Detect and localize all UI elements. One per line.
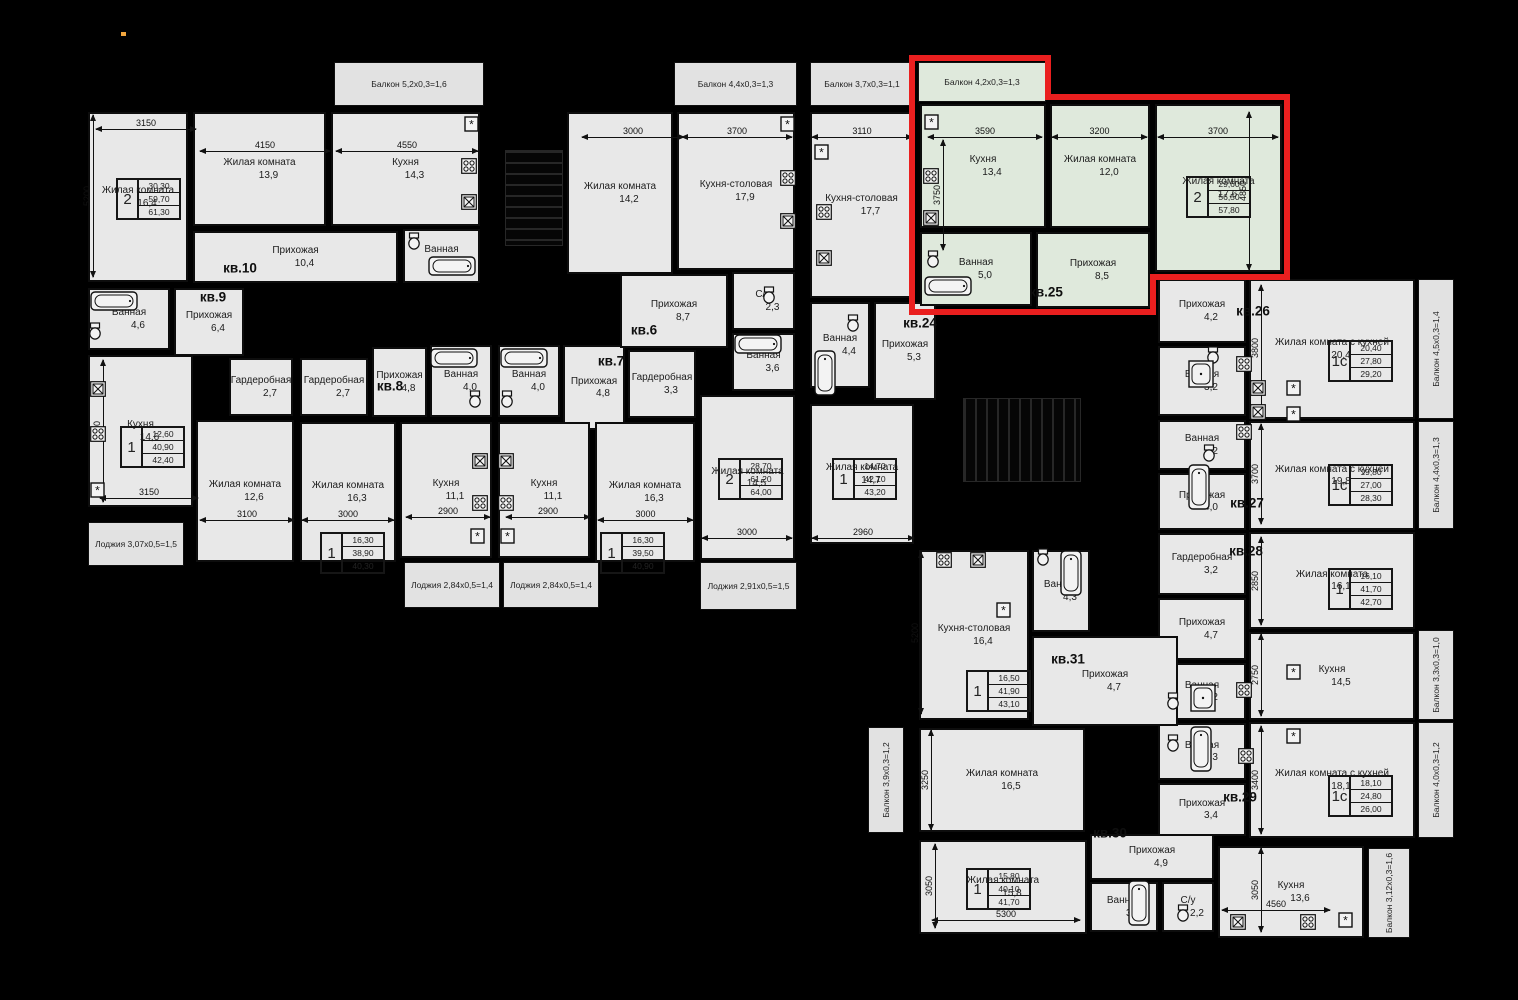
dimension: 3000 <box>702 527 792 539</box>
dimension-value: 3000 <box>338 509 358 519</box>
room-area: 4,4 <box>842 346 856 357</box>
balcony: Балкон 4,4х0,3=1,3 <box>674 62 797 106</box>
apartment-number-label: кв.7 <box>598 354 624 369</box>
balcony: Балкон 4,5х0,3=1,4 <box>1418 279 1454 419</box>
room-name: Кухня <box>531 478 558 489</box>
room: Кухня14,3 <box>331 112 480 226</box>
stove-icon <box>816 204 832 220</box>
dimension: 3150 <box>100 487 198 499</box>
dimension-value: 4560 <box>1266 899 1286 909</box>
spec-rooms-count: 2 <box>118 180 139 218</box>
room-name: Прихожая <box>882 339 928 350</box>
spec-rooms-count: 1 <box>834 460 855 498</box>
dimension-arrow-line <box>302 520 394 521</box>
dimension-value: 3700 <box>1250 464 1260 484</box>
apartment-number-label: кв.30 <box>1093 826 1127 841</box>
toilet-icon <box>1166 734 1180 752</box>
dimension-value: 3150 <box>139 487 159 497</box>
room-name: Прихожая <box>1179 798 1225 809</box>
dimension-arrow-line <box>931 730 932 830</box>
svg-text:*: * <box>505 530 510 544</box>
stove-icon <box>1236 424 1252 440</box>
apartment-number-label: кв.8 <box>377 379 403 394</box>
svg-text:*: * <box>1291 408 1296 422</box>
room-area: 16,3 <box>347 493 366 504</box>
balcony-label: Балкон 4,4х0,3=1,3 <box>1431 437 1441 513</box>
room: Жилая комната16,5 <box>919 728 1085 832</box>
spec-area-value: 28,70 <box>741 460 781 473</box>
dimension-arrow-line <box>1222 910 1330 911</box>
room-name: Гардеробная <box>304 375 365 386</box>
balcony-label: Лоджия 2,84х0,5=1,4 <box>411 580 493 590</box>
room-name: Жилая комната <box>966 768 1038 779</box>
spec-areas: 30,3059,7061,30 <box>139 180 179 218</box>
fridge-icon: * <box>780 116 795 132</box>
dimension-arrow-line <box>812 137 912 138</box>
apartment-number-label: кв.24 <box>903 316 937 331</box>
apartment-spec-table: 116,3039,5040,90 <box>600 532 665 574</box>
sink-icon <box>816 250 832 266</box>
spec-rooms-count: 1с <box>1330 342 1351 380</box>
balcony-label: Балкон 4,4х0,3=1,3 <box>698 79 774 89</box>
dimension-arrow-line <box>1158 137 1278 138</box>
spec-area-value: 26,00 <box>1351 803 1391 815</box>
room-area: 12,0 <box>1099 167 1118 178</box>
dimension-value: 3110 <box>852 126 871 136</box>
spec-area-value: 61,20 <box>741 473 781 486</box>
sink-icon <box>472 453 488 469</box>
room: Гардеробная2,7 <box>300 358 368 416</box>
spec-area-value: 43,10 <box>989 698 1029 710</box>
room-area: 14,5 <box>1331 677 1350 688</box>
balcony: Балкон 3,3х0,3=1,0 <box>1418 630 1454 720</box>
dimension-arrow-line <box>1261 848 1262 932</box>
toilet-icon <box>926 250 940 268</box>
svg-text:*: * <box>1001 604 1006 618</box>
room-area: 17,9 <box>735 192 754 203</box>
toilet-icon <box>846 314 860 332</box>
room-area: 14,3 <box>405 170 424 181</box>
room-name: Гардеробная <box>632 372 693 383</box>
balcony-label: Балкон 4,2х0,3=1,3 <box>944 77 1020 87</box>
balcony-label: Балкон 3,12х0,3=1,6 <box>1384 853 1394 933</box>
stove-icon <box>1236 356 1252 372</box>
room: Жилая комната12,6 <box>196 420 294 562</box>
room-name: Прихожая <box>1082 669 1128 680</box>
sink-icon <box>923 210 939 226</box>
dimension-value: 5200 <box>910 623 920 643</box>
dimension: 4850 <box>1238 112 1250 270</box>
spec-area-value: 27,00 <box>1351 479 1391 492</box>
fridge-icon: * <box>1338 912 1353 928</box>
fridge-icon: * <box>924 114 939 130</box>
room-area: 4,6 <box>131 320 145 331</box>
dimension-value: 3000 <box>635 509 655 519</box>
spec-area-value: 15,80 <box>989 870 1029 883</box>
spec-area-value: 20,40 <box>1351 342 1391 355</box>
dimension-arrow-line <box>921 552 922 714</box>
dimension: 4550 <box>336 140 478 152</box>
svg-text:*: * <box>785 118 790 132</box>
stove-icon <box>472 495 488 511</box>
apartment-spec-table: 116,1041,7042,70 <box>1328 568 1393 610</box>
spec-area-value: 42,40 <box>143 454 183 466</box>
spec-areas: 19,8027,0028,30 <box>1351 466 1391 504</box>
dimension-value: 3200 <box>1089 126 1109 136</box>
spec-area-value: 42,70 <box>1351 596 1391 608</box>
apartment-number-label: кв.6 <box>631 323 657 338</box>
spec-rooms-count: 1 <box>322 534 343 572</box>
room-area: 10,4 <box>295 258 314 269</box>
balcony: Балкон 4,2х0,3=1,3 <box>918 62 1046 102</box>
fridge-icon: * <box>500 528 515 544</box>
fridge-icon: * <box>464 116 479 132</box>
floor-plan: Жилая комната16,4Жилая комната13,9Кухня1… <box>0 0 1518 1000</box>
dimension: 3700 <box>1158 126 1278 138</box>
bath-v-icon <box>1190 726 1212 772</box>
dimension-value: 3590 <box>975 126 995 136</box>
bath-v-icon <box>1188 464 1210 510</box>
dimension-arrow-line <box>336 151 478 152</box>
room: Гардеробная3,2 <box>1158 533 1246 595</box>
apartment-spec-table: 116,5041,9043,10 <box>966 670 1031 712</box>
apartment-spec-table: 114,7042,1043,20 <box>832 458 897 500</box>
spec-rooms-count: 1 <box>1330 570 1351 608</box>
room-area: 11,1 <box>446 491 465 502</box>
spec-area-value: 59,70 <box>139 193 179 206</box>
spec-area-value: 14,70 <box>855 460 895 473</box>
spec-area-value: 24,80 <box>1351 790 1391 803</box>
apartment-number-label: кв.25 <box>1029 285 1063 300</box>
spec-areas: 18,1024,8026,00 <box>1351 777 1391 815</box>
apartment-spec-table: 115,8040,1041,70 <box>966 868 1031 910</box>
room-area: 8,5 <box>1095 271 1109 282</box>
dimension-value: 2900 <box>438 506 458 516</box>
room-name: Гардеробная <box>1172 552 1233 563</box>
balcony-label: Лоджия 2,84х0,5=1,4 <box>510 580 592 590</box>
room-area: 4,9 <box>1154 858 1168 869</box>
room-name: Прихожая <box>571 376 617 387</box>
balcony: Лоджия 2,84х0,5=1,4 <box>503 562 599 608</box>
room-area: 16,5 <box>1001 781 1020 792</box>
room: Жилая комната12,0 <box>1050 104 1150 228</box>
room-area: 17,7 <box>861 206 880 217</box>
balcony-label: Балкон 4,5х0,3=1,4 <box>1431 311 1441 387</box>
balcony-label: Балкон 3,9х0,3=1,2 <box>881 742 891 818</box>
apartment-spec-table: 116,3038,9040,30 <box>320 532 385 574</box>
stove-icon <box>936 552 952 568</box>
room: Гардеробная2,7 <box>229 358 293 416</box>
balcony-label: Балкон 3,7х0,3=1,1 <box>824 79 900 89</box>
room-area: 6,4 <box>211 323 225 334</box>
room: Прихожая4,7 <box>1032 636 1178 726</box>
svg-text:*: * <box>819 146 824 160</box>
dimension: 3400 <box>1250 726 1262 834</box>
room-area: 14,2 <box>619 194 638 205</box>
dimension-value: 3000 <box>623 126 643 136</box>
room-area: 3,4 <box>1204 810 1218 821</box>
room-area: 4,7 <box>1107 682 1121 693</box>
spec-area-value: 16,50 <box>989 672 1029 685</box>
sink-icon <box>1250 380 1266 396</box>
dimension-value: 3050 <box>1250 880 1260 900</box>
spec-rooms-count: 1 <box>968 672 989 710</box>
spec-rooms-count: 2 <box>1188 178 1209 216</box>
apartment-spec-table: 1с20,4027,8029,20 <box>1328 340 1393 382</box>
room: Кухня14,5 <box>1249 632 1415 720</box>
dimension-arrow-line <box>943 140 944 250</box>
dimension-value: 2900 <box>538 506 558 516</box>
dimension: 4560 <box>1222 899 1330 911</box>
room: Жилая комната13,9 <box>193 112 326 226</box>
dimension-value: 3050 <box>924 876 934 896</box>
room-name: Жилая комната <box>223 157 295 168</box>
dimension: 2900 <box>506 506 590 518</box>
dimension-arrow-line <box>598 520 693 521</box>
spec-areas: 15,8040,1041,70 <box>989 870 1029 908</box>
dimension-arrow-line <box>1249 112 1250 270</box>
dimension-arrow-line <box>506 517 590 518</box>
stove-icon <box>1238 748 1254 764</box>
sink-icon <box>1230 914 1246 930</box>
spec-areas: 28,7061,2064,00 <box>741 460 781 498</box>
room-area: 13,4 <box>982 167 1001 178</box>
bath-v-icon <box>814 350 836 396</box>
room-area: 3,3 <box>664 385 678 396</box>
spec-areas: 14,7042,1043,20 <box>855 460 895 498</box>
room-name: Ванная <box>823 333 857 344</box>
dimension: 3050 <box>1250 848 1262 932</box>
dimension-value: 3150 <box>136 118 156 128</box>
room-name: Прихожая <box>272 245 318 256</box>
spec-area-value: 16,30 <box>343 534 383 547</box>
room-name: Жилая комната <box>584 181 656 192</box>
dimension-value: 2960 <box>853 527 873 537</box>
spec-area-value: 38,90 <box>343 547 383 560</box>
balcony-label: Балкон 3,3х0,3=1,0 <box>1431 637 1441 713</box>
room-area: 5,0 <box>978 270 992 281</box>
spec-rooms-count: 1 <box>968 870 989 908</box>
apartment-number-label: кв.10 <box>223 261 257 276</box>
spec-area-value: 40,90 <box>143 441 183 454</box>
stairwell <box>505 150 563 246</box>
room-name: Прихожая <box>1179 299 1225 310</box>
fridge-icon: * <box>1286 664 1301 680</box>
sink-icon <box>461 194 477 210</box>
dimension-arrow-line <box>93 115 94 277</box>
fridge-icon: * <box>996 602 1011 618</box>
fridge-icon: * <box>470 528 485 544</box>
apartment-spec-table: 228,7061,2064,00 <box>718 458 783 500</box>
dimension-value: 3700 <box>1208 126 1228 136</box>
room-area: 13,9 <box>259 170 278 181</box>
dimension-value: 4850 <box>1238 181 1248 201</box>
room-area: 4,7 <box>1204 630 1218 641</box>
dimension-value: 3400 <box>1250 770 1260 790</box>
balcony-label: Лоджия 2,91х0,5=1,5 <box>708 581 790 591</box>
corner-marker <box>121 32 126 36</box>
dimension-value: 3700 <box>727 126 747 136</box>
shower-icon <box>1190 684 1216 712</box>
sink-icon <box>90 381 106 397</box>
spec-areas: 16,1041,7042,70 <box>1351 570 1391 608</box>
spec-area-value: 27,80 <box>1351 355 1391 368</box>
svg-text:*: * <box>1291 666 1296 680</box>
room-name: Ванная <box>1185 433 1219 444</box>
room-name: Прихожая <box>1179 617 1225 628</box>
balcony: Балкон 3,12х0,3=1,6 <box>1368 848 1410 938</box>
toilet-icon <box>1036 548 1050 566</box>
dimension-value: 3250 <box>920 770 930 790</box>
sink-icon <box>970 552 986 568</box>
dimension-value: 5200 <box>82 186 92 206</box>
spec-area-value: 41,70 <box>989 896 1029 908</box>
toilet-icon <box>762 286 776 304</box>
dimension: 2750 <box>1250 634 1262 716</box>
dimension: 3100 <box>200 509 294 521</box>
stairwell <box>963 398 1081 482</box>
sink-icon <box>498 453 514 469</box>
room-name: Кухня-столовая <box>938 623 1011 634</box>
stove-icon <box>780 170 796 186</box>
dimension: 3000 <box>598 509 693 521</box>
apartment-number-label: кв.31 <box>1051 652 1085 667</box>
balcony: Балкон 5,2х0,3=1,6 <box>334 62 484 106</box>
spec-area-value: 43,20 <box>855 486 895 498</box>
svg-text:*: * <box>929 116 934 130</box>
dimension-arrow-line <box>96 129 196 130</box>
dimension: 4150 <box>200 140 330 152</box>
spec-rooms-count: 2 <box>720 460 741 498</box>
dimension-arrow-line <box>1261 634 1262 716</box>
stove-icon <box>1300 914 1316 930</box>
dimension: 3000 <box>302 509 394 521</box>
dimension-arrow-line <box>932 920 1080 921</box>
room-name: Ванная <box>444 369 478 380</box>
spec-area-value: 39,50 <box>623 547 663 560</box>
apartment-spec-table: 230,3059,7061,30 <box>116 178 181 220</box>
room-area: 4,0 <box>531 382 545 393</box>
bath-h-icon <box>924 276 972 296</box>
dimension-value: 3000 <box>737 527 757 537</box>
dimension: 3750 <box>932 140 944 250</box>
balcony: Балкон 4,4х0,3=1,3 <box>1418 421 1454 529</box>
fridge-icon: * <box>814 144 829 160</box>
room-area: 3,6 <box>766 363 780 374</box>
apartment-number-label: кв.9 <box>200 290 226 305</box>
room-name: Кухня <box>433 478 460 489</box>
stove-icon <box>1236 682 1252 698</box>
balcony: Лоджия 2,84х0,5=1,4 <box>404 562 500 608</box>
spec-area-value: 41,70 <box>1351 583 1391 596</box>
dimension: 3700 <box>682 126 792 138</box>
svg-text:*: * <box>1291 730 1296 744</box>
dimension-value: 3750 <box>932 185 942 205</box>
dimension-arrow-line <box>702 538 792 539</box>
dimension-arrow-line <box>1052 137 1147 138</box>
spec-area-value: 40,10 <box>989 883 1029 896</box>
balcony-label: Лоджия 3,07х0,5=1,5 <box>95 539 177 549</box>
balcony: Балкон 3,7х0,3=1,1 <box>810 62 914 106</box>
room-area: 5,3 <box>907 352 921 363</box>
room-name: Прихожая <box>1129 845 1175 856</box>
room-name: Жилая комната <box>1064 154 1136 165</box>
fridge-icon: * <box>1286 380 1301 396</box>
spec-area-value: 29,20 <box>1351 368 1391 380</box>
fridge-icon: * <box>1286 406 1301 422</box>
bath-h-icon <box>734 334 782 354</box>
dimension-value: 5300 <box>996 909 1016 919</box>
room-name: Прихожая <box>1070 258 1116 269</box>
bath-h-icon <box>430 348 478 368</box>
dimension: 3590 <box>928 126 1042 138</box>
spec-rooms-count: 1с <box>1330 466 1351 504</box>
dimension-value: 2850 <box>1250 571 1260 591</box>
dimension-arrow-line <box>100 498 198 499</box>
toilet-icon <box>1166 692 1180 710</box>
room-name: Прихожая <box>186 310 232 321</box>
balcony: Балкон 4,0х0,3=1,2 <box>1418 722 1454 838</box>
dimension: 3000 <box>582 126 684 138</box>
dimension: 2960 <box>812 527 914 539</box>
stove-icon <box>923 168 939 184</box>
bath-h-icon <box>428 256 476 276</box>
sink-icon <box>1250 404 1266 420</box>
fridge-icon: * <box>90 482 105 498</box>
dimension-arrow-line <box>200 520 294 521</box>
dimension-value: 4150 <box>255 140 275 150</box>
room-area: 4,2 <box>1204 312 1218 323</box>
dimension-arrow-line <box>406 517 490 518</box>
room-area: 16,3 <box>644 493 663 504</box>
apartment-spec-table: 1с18,1024,8026,00 <box>1328 775 1393 817</box>
spec-area-value: 42,10 <box>855 473 895 486</box>
dimension-arrow-line <box>200 151 330 152</box>
balcony: Балкон 3,9х0,3=1,2 <box>868 727 904 833</box>
svg-text:*: * <box>475 530 480 544</box>
bath-v-icon <box>1060 550 1082 596</box>
apartment-spec-table: 1с19,8027,0028,30 <box>1328 464 1393 506</box>
toilet-icon <box>88 322 102 340</box>
room-name: Прихожая <box>651 299 697 310</box>
room: Прихожая4,2 <box>1158 279 1246 343</box>
dimension-arrow-line <box>1261 424 1262 524</box>
spec-area-value: 40,90 <box>623 560 663 572</box>
bath-h-icon <box>500 348 548 368</box>
room-area: 2,7 <box>336 388 350 399</box>
room-area: 4,8 <box>596 388 610 399</box>
dimension-arrow-line <box>1261 726 1262 834</box>
room-name: Кухня <box>1278 880 1305 891</box>
spec-area-value: 28,30 <box>1351 492 1391 504</box>
room-name: Кухня <box>392 157 419 168</box>
spec-area-value: 16,10 <box>1351 570 1391 583</box>
toilet-icon <box>500 390 514 408</box>
room-name: Кухня <box>1319 664 1346 675</box>
dimension: 3200 <box>1052 126 1147 138</box>
dimension: 5300 <box>932 909 1080 921</box>
dimension-value: 3100 <box>237 509 257 519</box>
room-name: Жилая комната <box>312 480 384 491</box>
svg-text:*: * <box>1343 914 1348 928</box>
room: Гардеробная3,3 <box>628 350 696 418</box>
spec-area-value: 30,30 <box>139 180 179 193</box>
toilet-icon <box>407 232 421 250</box>
room-name: Жилая комната <box>609 480 681 491</box>
toilet-icon <box>1176 904 1190 922</box>
room: Прихожая4,9 <box>1090 834 1214 880</box>
fridge-icon: * <box>1286 728 1301 744</box>
